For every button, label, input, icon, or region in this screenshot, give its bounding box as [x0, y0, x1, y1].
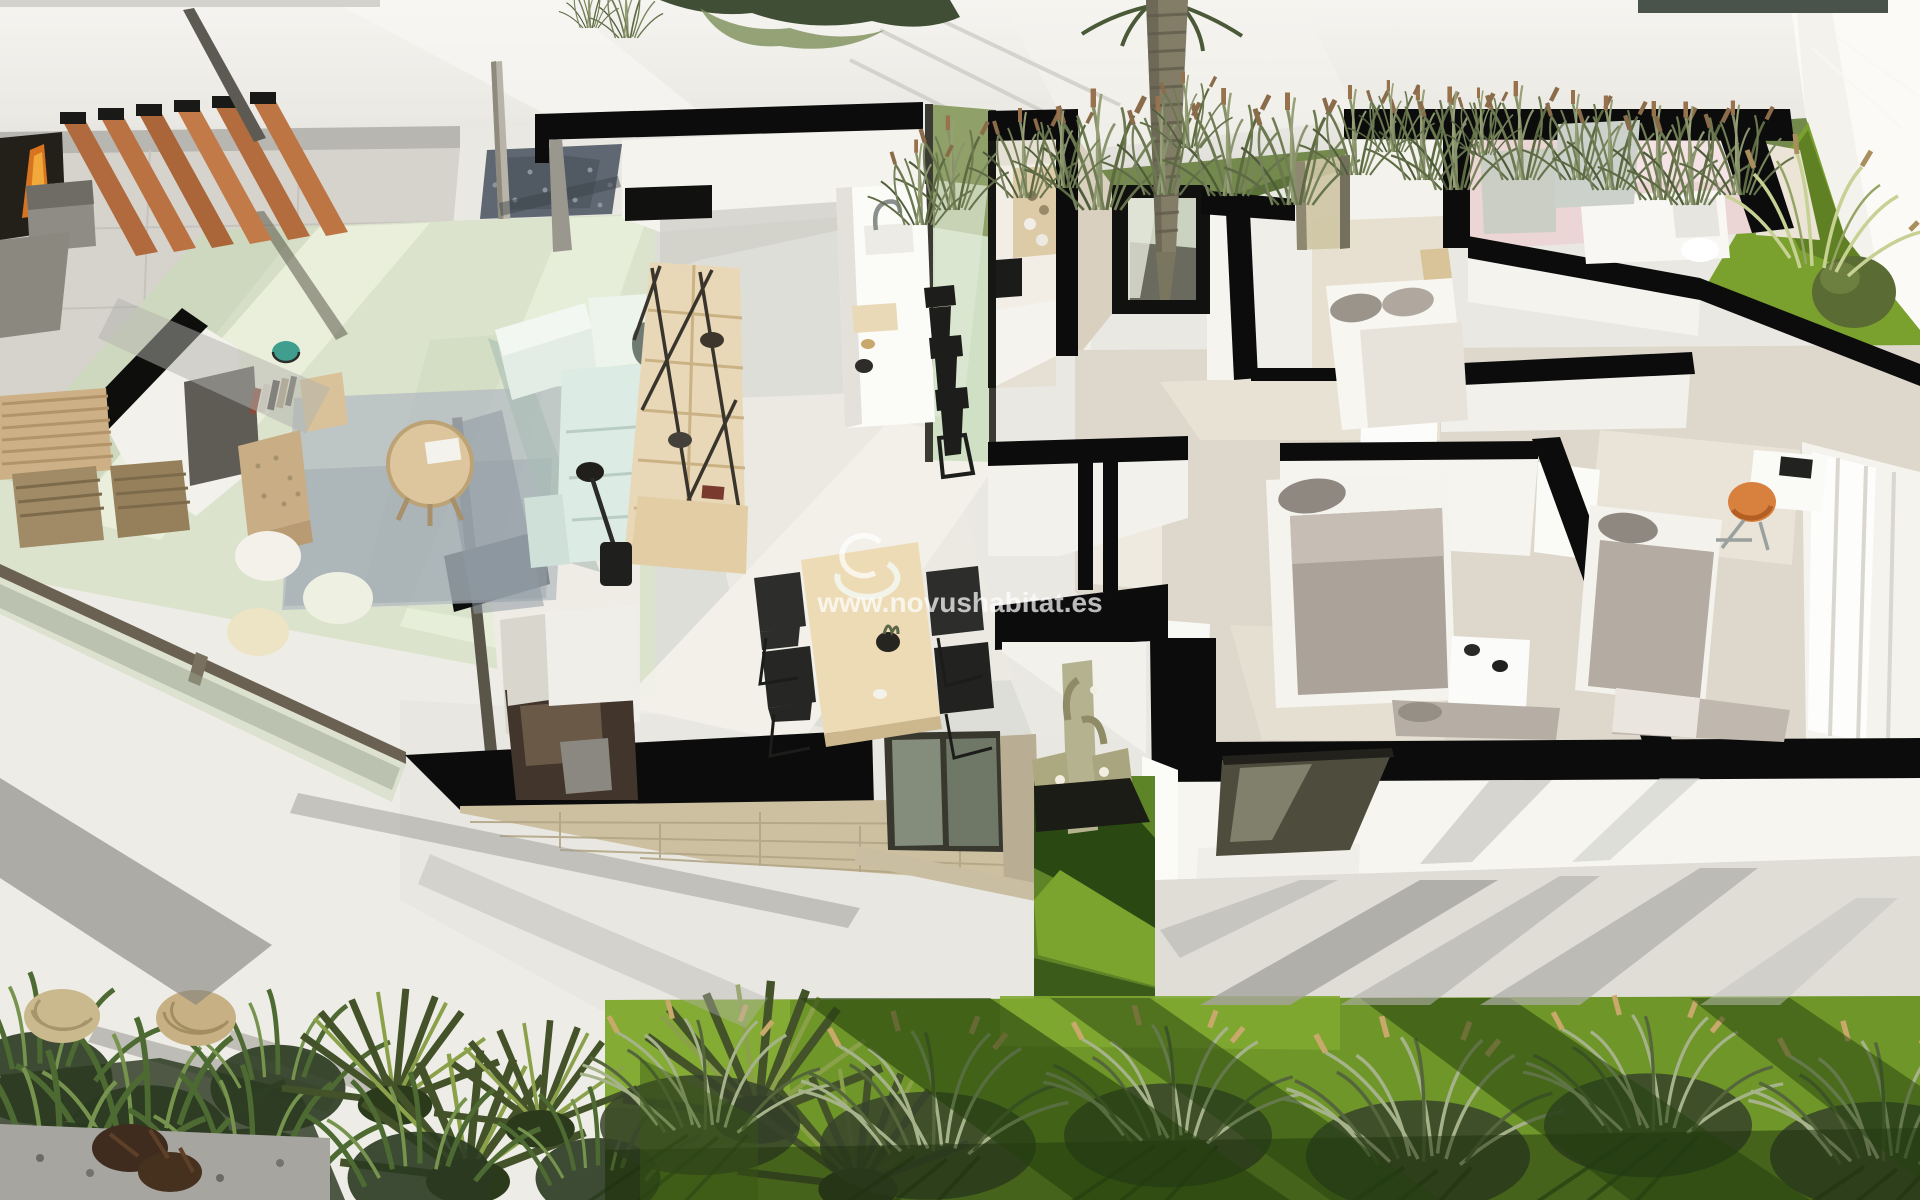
svg-text:www.novushabitat.es: www.novushabitat.es [816, 587, 1102, 618]
